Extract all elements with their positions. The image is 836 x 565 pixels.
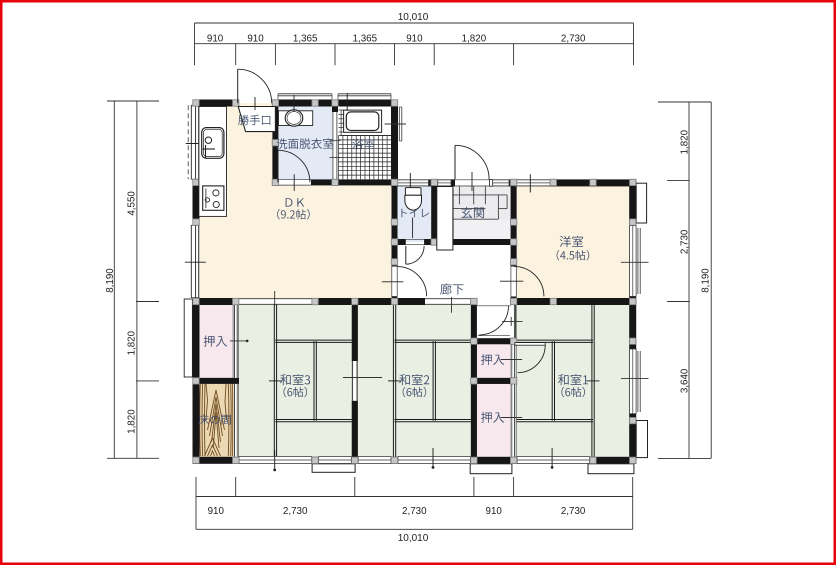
svg-text:2,730: 2,730 — [402, 506, 427, 517]
svg-text:10,010: 10,010 — [398, 12, 429, 23]
svg-text:8,190: 8,190 — [105, 268, 116, 293]
svg-text:1,820: 1,820 — [127, 330, 138, 355]
svg-text:2,730: 2,730 — [561, 34, 586, 45]
svg-text:2,730: 2,730 — [679, 229, 690, 254]
svg-text:910: 910 — [486, 506, 503, 517]
svg-text:2,730: 2,730 — [283, 506, 308, 517]
svg-text:910: 910 — [247, 34, 264, 45]
svg-text:4,550: 4,550 — [127, 191, 138, 216]
svg-text:910: 910 — [207, 34, 224, 45]
svg-text:1,365: 1,365 — [353, 34, 378, 45]
svg-text:910: 910 — [208, 506, 225, 517]
svg-text:10,010: 10,010 — [398, 533, 429, 544]
svg-text:910: 910 — [406, 34, 423, 45]
svg-text:1,820: 1,820 — [462, 34, 487, 45]
svg-text:2,730: 2,730 — [561, 506, 586, 517]
svg-text:8,190: 8,190 — [700, 268, 711, 293]
svg-text:1,365: 1,365 — [293, 34, 318, 45]
svg-text:1,820: 1,820 — [679, 129, 690, 154]
svg-text:3,640: 3,640 — [679, 368, 690, 393]
svg-text:1,820: 1,820 — [127, 409, 138, 434]
